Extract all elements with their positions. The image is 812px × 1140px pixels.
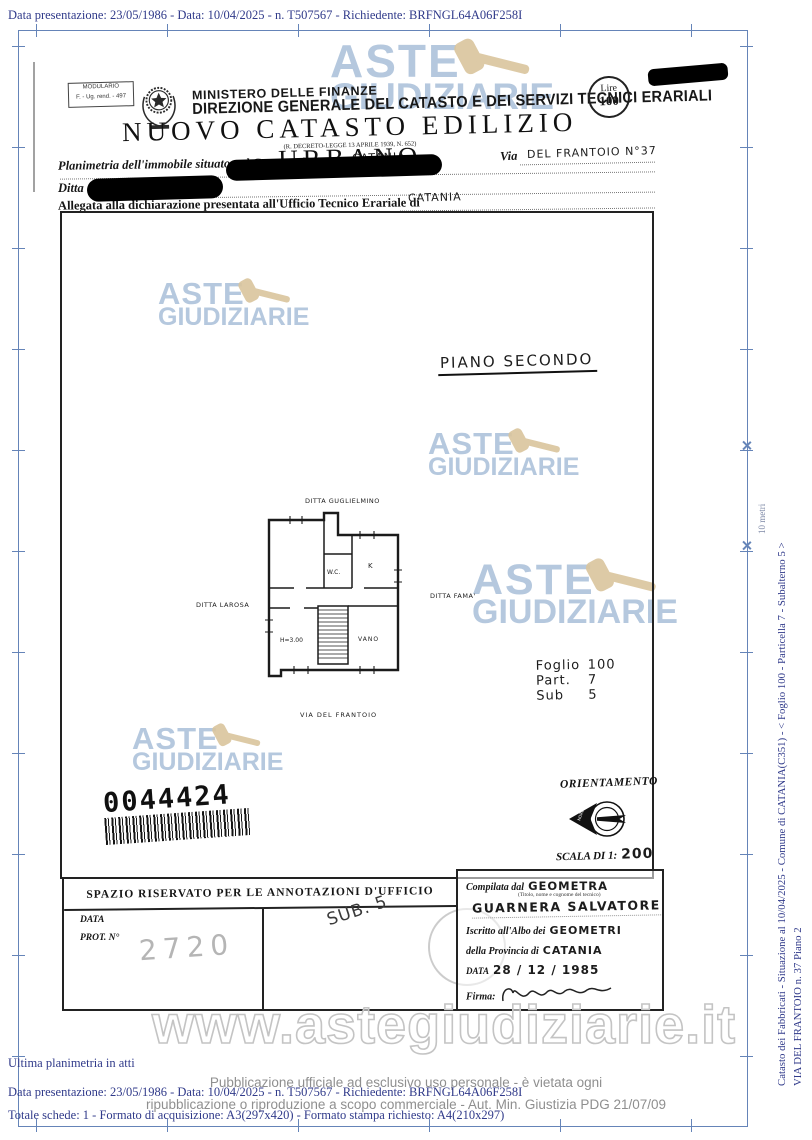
via-label: Via (500, 149, 518, 164)
albo-row: Iscritto all'Albo dei GEOMETRI (466, 921, 622, 939)
barcode-stamp: 0044424 (102, 781, 251, 845)
albo-value: GEOMETRI (549, 924, 621, 937)
redaction-bar (87, 175, 224, 202)
data-label: DATA (466, 966, 489, 976)
prot-number-handwritten: 2720 (138, 928, 235, 968)
provincia-label: della Provincia di (466, 946, 539, 957)
room-wc-label: W.C. (327, 569, 340, 576)
data-value: 28 / 12 / 1985 (493, 963, 599, 977)
annotations-box: SPAZIO RISERVATO PER LE ANNOTAZIONI D'UF… (62, 877, 458, 1011)
plan-label-ditta-top: DITTA GUGLIELMINO (305, 497, 380, 505)
compilata-value: GEOMETRA (528, 879, 608, 893)
scala-value: 200 (621, 846, 654, 863)
document-page: { "page": { "top_line": "Data presentazi… (0, 0, 812, 1140)
floor-label: PIANO SECONDO (438, 350, 598, 376)
plan-label-ditta-right: DITTA FAMA' (430, 592, 476, 600)
floor-plan: W.C. K VANO H=3.00 (260, 510, 408, 682)
ref-value: 100 (588, 657, 616, 672)
footer-meta-1: Data presentazione: 23/05/1986 - Data: 1… (8, 1085, 522, 1100)
plan-label-via: VIA DEL FRANTOIO (300, 711, 377, 719)
scale-mark-top (741, 440, 752, 451)
provincia-value: CATANIA (543, 944, 603, 957)
albo-label: Iscritto all'Albo dei (466, 926, 545, 937)
side-caption-1: Catasto dei Fabbricati - Situazione al 1… (776, 406, 788, 1086)
scale-note: SCALA DI 1: 200 (556, 845, 654, 866)
gavel-icon (450, 34, 536, 92)
provincia-row: della Provincia di CATANIA (466, 941, 603, 959)
annotations-title: SPAZIO RISERVATO PER LE ANNOTAZIONI D'UF… (64, 877, 456, 911)
side-scale-label: 10 metri (757, 484, 767, 534)
room-k-label: K (368, 562, 373, 570)
footer-meta-2: Totale schede: 1 - Formato di acquisizio… (8, 1108, 504, 1123)
ref-value: 7 (588, 673, 598, 688)
cadastral-ref: Foglio100 Part.7 Sub5 (536, 657, 617, 703)
scale-mark-bottom (741, 540, 752, 551)
frame-ticks-right (740, 46, 753, 1086)
doc-meta-top: Data presentazione: 23/05/1986 - Data: 1… (8, 8, 522, 23)
scala-label: SCALA DI 1: (556, 850, 617, 864)
data-row: DATA 28 / 12 / 1985 (466, 961, 599, 979)
footer-ultima: Ultima planimetria in atti (8, 1056, 135, 1071)
room-vano-label: VANO (358, 636, 379, 643)
modulario-line2: F. - Ug. rend. - 497 (69, 92, 133, 103)
ref-value: 5 (588, 688, 598, 703)
annotations-data-label: DATA (80, 915, 104, 925)
side-caption-2: VIA DEL FRANTOIO n. 37 Piano 2 (792, 406, 804, 1086)
ufficio-value: CATANIA (408, 190, 462, 204)
ref-label: Part. (536, 673, 588, 689)
annotations-prot-label: PROT. N° (80, 933, 119, 943)
watermark-url: www.astegiudiziarie.it (152, 994, 736, 1056)
ref-label: Sub (536, 688, 588, 704)
ditta-label: Ditta (58, 181, 84, 196)
ref-label: Foglio (536, 658, 588, 674)
plan-label-ditta-left: DITTA LAROSA (196, 601, 249, 609)
titolo-note: (Titolo, nome e cognome del tecnico) (518, 892, 601, 898)
scan-fold-mark (33, 62, 35, 192)
room-height-label: H=3.00 (280, 637, 303, 644)
compass-icon: NORD (566, 792, 638, 846)
compilata-label: Compilata dal (466, 882, 524, 893)
frame-ticks-left (12, 46, 25, 1086)
signature-box: Compilata dal GEOMETRA (Titolo, nome e c… (456, 869, 664, 1011)
modulario-box: MODULARIO F. - Ug. rend. - 497 (68, 81, 135, 108)
geometra-name: GUARNERA SALVATORE (472, 897, 661, 918)
